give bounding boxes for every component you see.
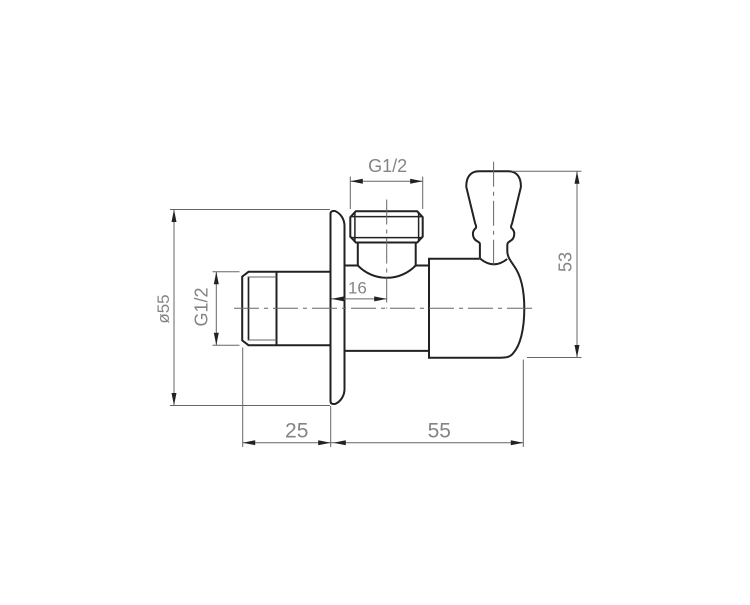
svg-text:G1/2: G1/2 — [368, 156, 407, 176]
svg-text:53: 53 — [556, 252, 576, 272]
svg-text:G1/2: G1/2 — [191, 287, 211, 326]
svg-text:ø55: ø55 — [154, 294, 173, 323]
svg-text:16: 16 — [348, 279, 367, 298]
svg-text:25: 25 — [285, 420, 308, 443]
svg-text:55: 55 — [428, 420, 451, 443]
